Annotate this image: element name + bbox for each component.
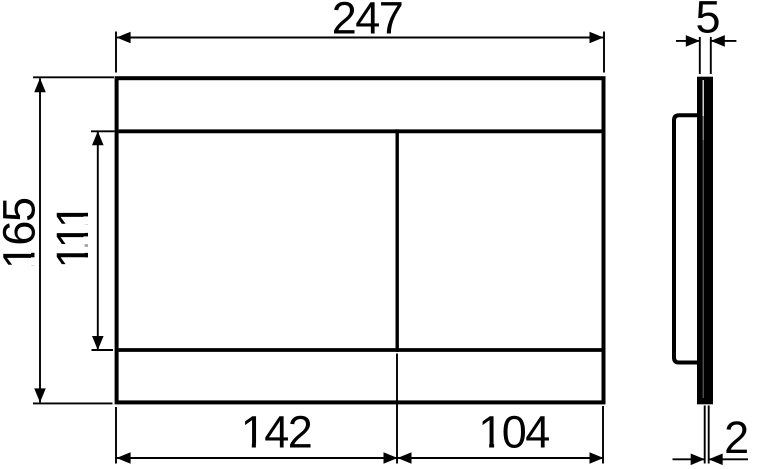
svg-text:247: 247 [332,0,403,44]
svg-text:111: 111 [47,205,98,269]
svg-text:2: 2 [724,412,749,463]
svg-text:165: 165 [0,198,45,269]
svg-text:5: 5 [696,0,720,43]
svg-text:142: 142 [241,407,312,458]
svg-text:104: 104 [478,407,549,458]
